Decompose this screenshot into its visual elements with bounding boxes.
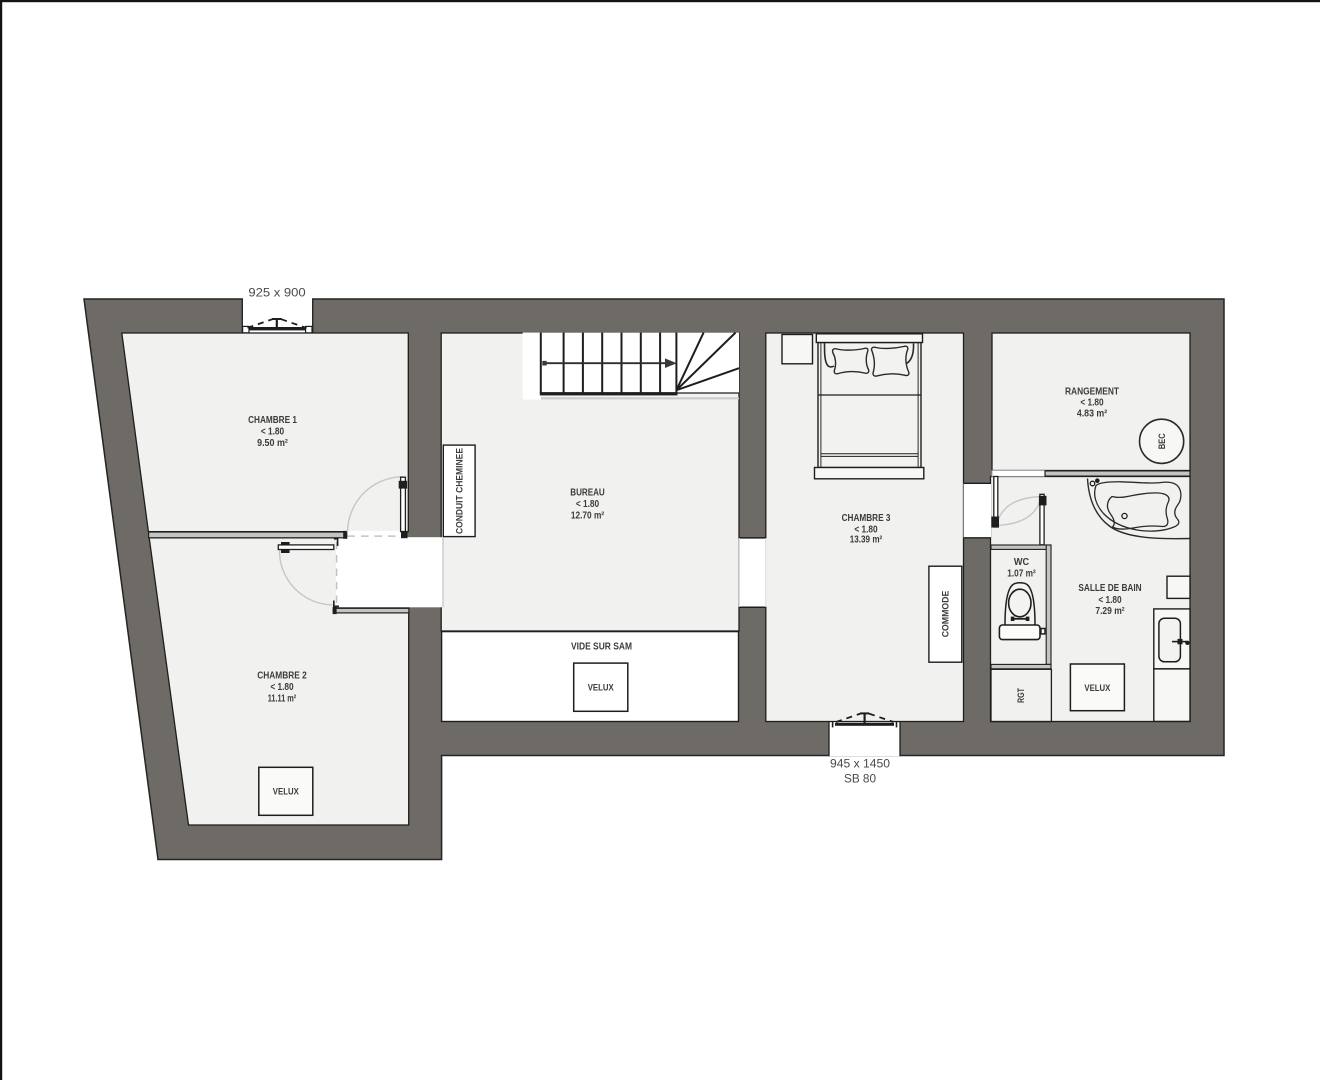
svg-text:VIDE SUR SAM: VIDE SUR SAM xyxy=(571,642,632,653)
svg-text:BEC: BEC xyxy=(1157,433,1168,449)
svg-text:925 x 900: 925 x 900 xyxy=(248,285,306,299)
svg-text:BUREAU: BUREAU xyxy=(570,487,605,498)
svg-text:WC: WC xyxy=(1014,557,1029,568)
svg-text:COMMODE: COMMODE xyxy=(941,591,952,638)
svg-text:CHAMBRE 3: CHAMBRE 3 xyxy=(842,513,891,524)
svg-text:RANGEMENT: RANGEMENT xyxy=(1065,386,1119,397)
svg-text:< 1.80: < 1.80 xyxy=(261,426,285,437)
svg-text:< 1.80: < 1.80 xyxy=(270,682,294,693)
svg-text:VELUX: VELUX xyxy=(1084,683,1111,694)
svg-text:7.29 m²: 7.29 m² xyxy=(1095,606,1125,617)
svg-text:4.83 m²: 4.83 m² xyxy=(1077,408,1108,419)
svg-text:CHAMBRE 1: CHAMBRE 1 xyxy=(248,415,297,426)
svg-text:< 1.80: < 1.80 xyxy=(576,499,600,510)
svg-text:VELUX: VELUX xyxy=(273,787,300,798)
svg-text:11.11 m²: 11.11 m² xyxy=(268,693,297,704)
svg-text:< 1.80: < 1.80 xyxy=(1098,595,1122,606)
svg-text:< 1.80: < 1.80 xyxy=(1080,398,1104,409)
svg-text:RGT: RGT xyxy=(1016,688,1027,703)
svg-text:VELUX: VELUX xyxy=(588,683,615,694)
svg-text:1.07 m²: 1.07 m² xyxy=(1007,568,1036,579)
svg-text:SB 80: SB 80 xyxy=(844,772,876,786)
svg-text:CONDUIT CHEMINEE: CONDUIT CHEMINEE xyxy=(455,448,465,534)
svg-text:SALLE DE BAIN: SALLE DE BAIN xyxy=(1078,583,1141,594)
svg-text:12.70 m²: 12.70 m² xyxy=(571,510,605,521)
svg-text:945 x 1450: 945 x 1450 xyxy=(830,757,890,771)
svg-text:CHAMBRE 2: CHAMBRE 2 xyxy=(257,670,307,681)
svg-text:9.50 m²: 9.50 m² xyxy=(257,438,288,449)
svg-text:13.39 m²: 13.39 m² xyxy=(850,535,883,546)
